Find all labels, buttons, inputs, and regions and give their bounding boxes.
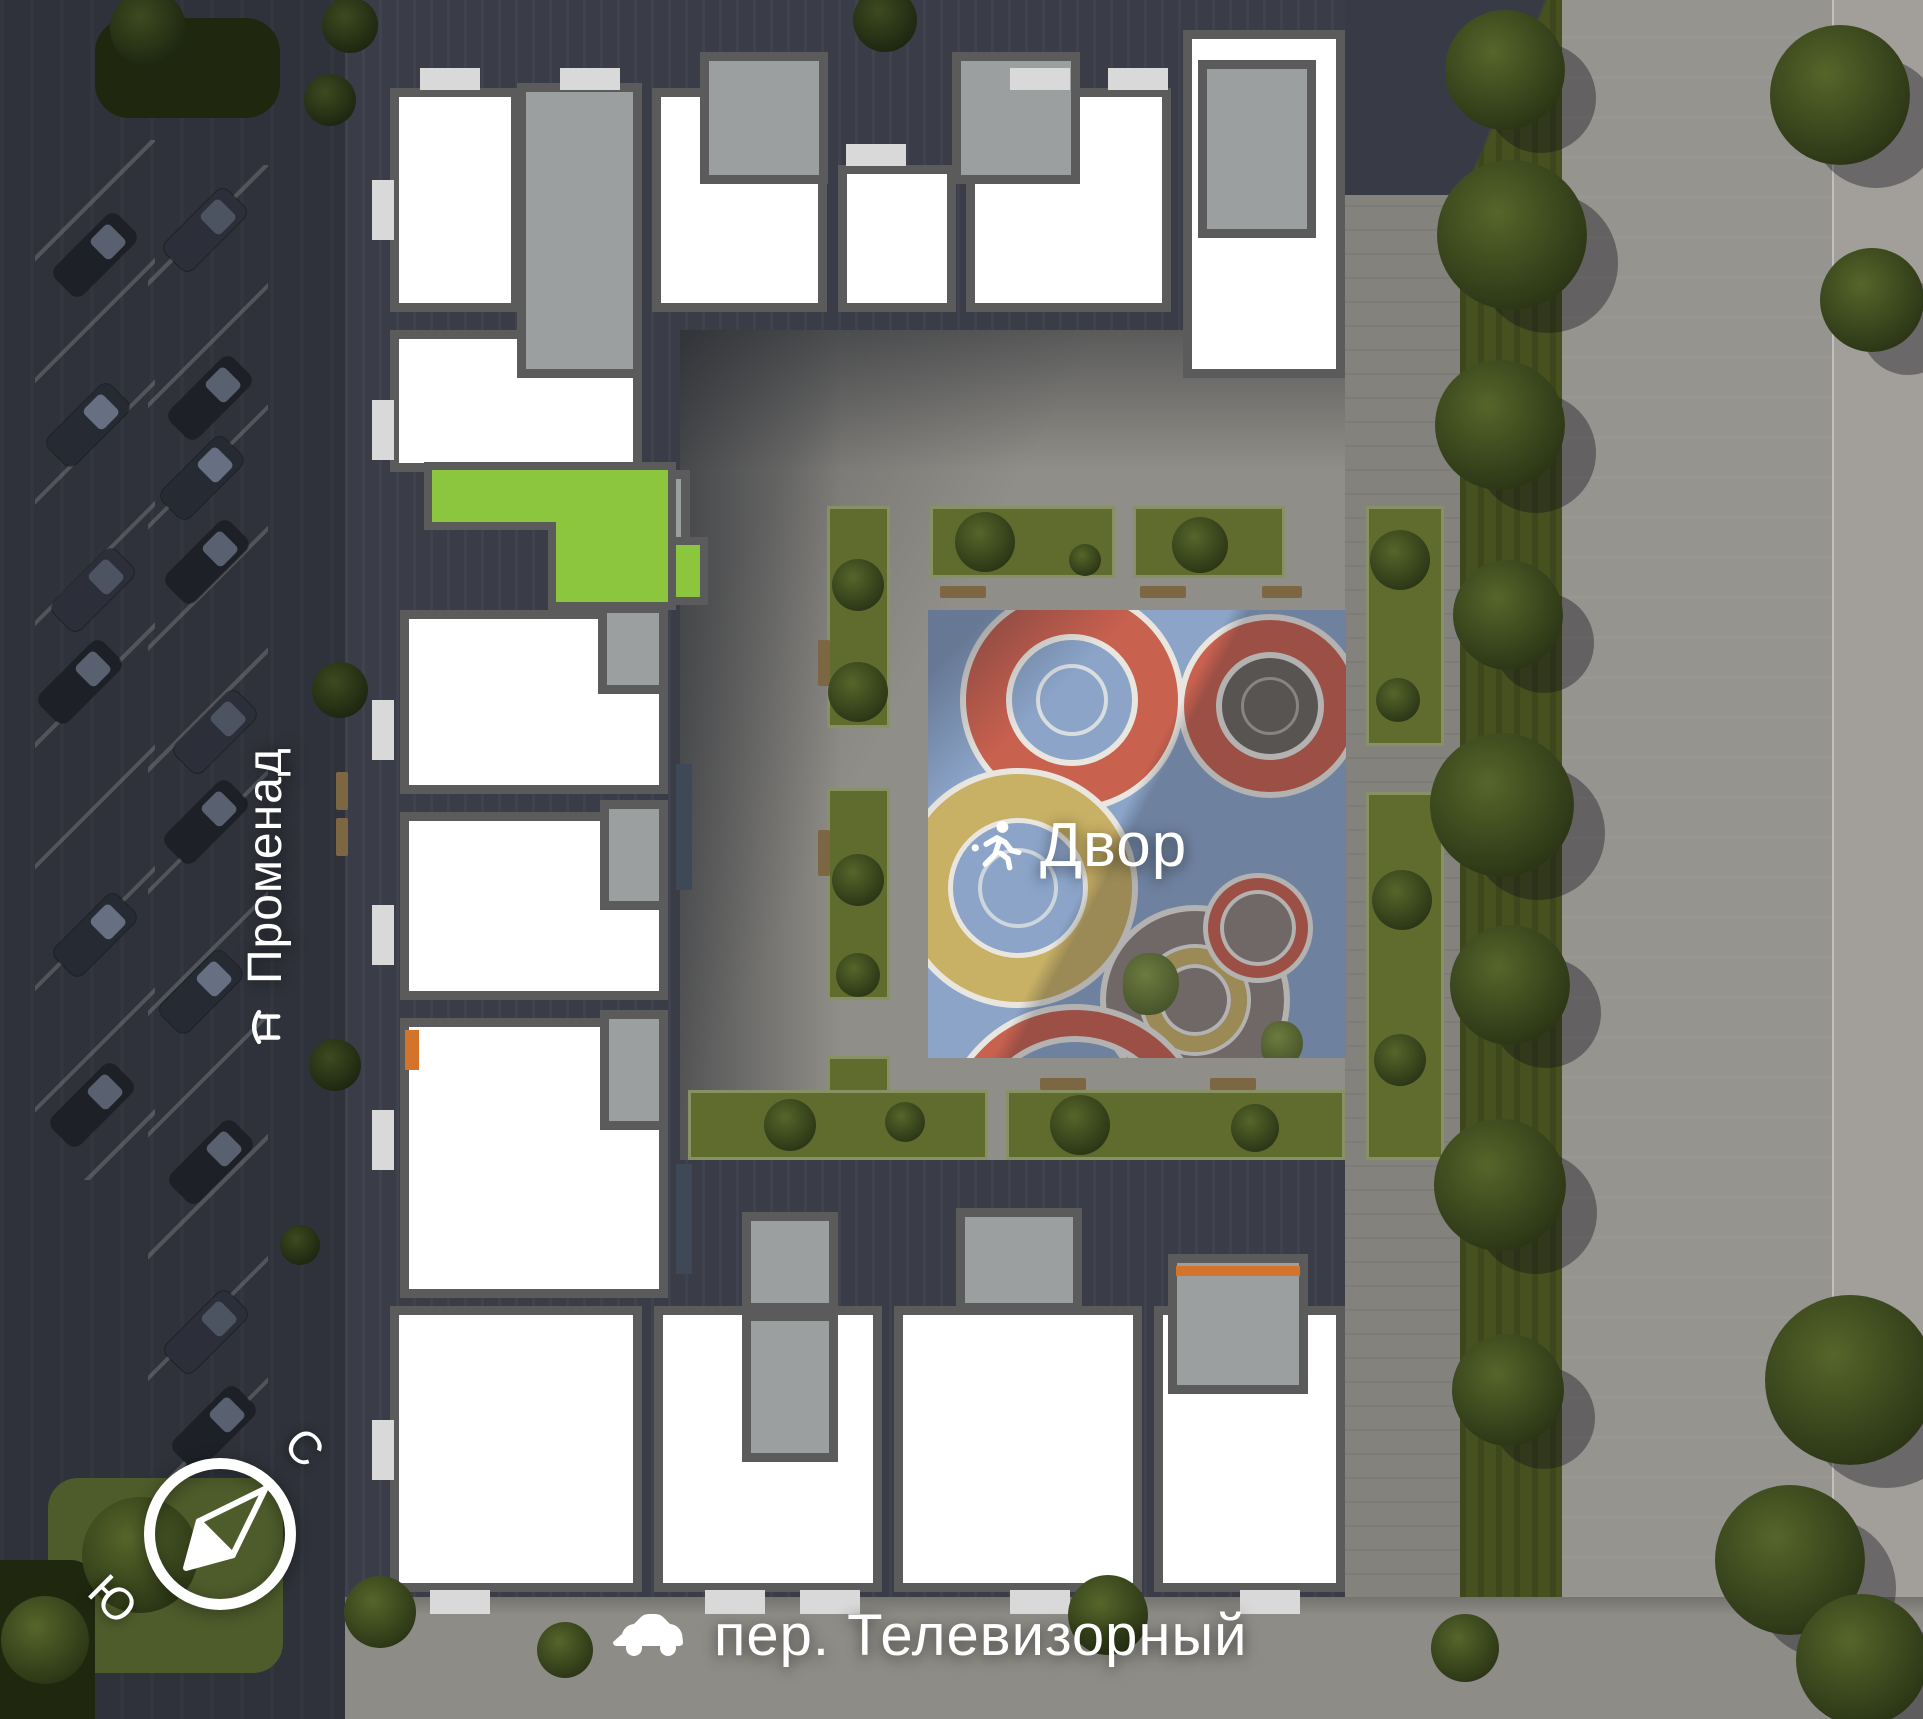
- entrance-glass: [676, 1164, 692, 1274]
- stair-core: [1198, 60, 1316, 238]
- lawn-bed: [688, 1090, 988, 1160]
- tree: [1069, 544, 1101, 576]
- bench: [336, 772, 348, 810]
- balcony-ledge: [560, 68, 620, 90]
- bench: [336, 818, 348, 856]
- tree: [1430, 733, 1574, 877]
- apartment-unit: [838, 165, 956, 312]
- street-label-text: Променад: [238, 747, 293, 984]
- balcony-ledge: [372, 180, 394, 240]
- bench: [1262, 586, 1302, 598]
- tree: [828, 662, 888, 722]
- tree: [885, 1102, 925, 1142]
- tree: [1370, 530, 1430, 590]
- car-icon: [612, 1610, 688, 1662]
- tree: [1374, 1034, 1426, 1086]
- tree: [1820, 248, 1923, 352]
- balcony-ledge: [846, 144, 906, 166]
- bench: [1040, 1078, 1086, 1090]
- tree: [1434, 1119, 1566, 1251]
- tree: [1372, 870, 1432, 930]
- tree: [309, 1039, 361, 1091]
- tree: [537, 1622, 593, 1678]
- courtyard-label: Двор: [968, 810, 1187, 881]
- balcony-ledge: [430, 1590, 490, 1614]
- tree: [832, 559, 884, 611]
- street-label-text: пер. Телевизорный: [714, 1602, 1248, 1669]
- apartment-unit: [390, 88, 520, 312]
- stair-core: [600, 800, 668, 910]
- stair-core: [517, 83, 642, 378]
- accent-stripe: [1176, 1266, 1300, 1276]
- apartment-unit: [390, 1306, 642, 1592]
- accent-stripe: [405, 1030, 419, 1070]
- tree: [832, 854, 884, 906]
- bench: [1210, 1078, 1256, 1090]
- tree: [344, 1576, 416, 1648]
- bench: [818, 640, 830, 686]
- tree: [1172, 517, 1228, 573]
- balcony-ledge: [372, 1420, 394, 1480]
- tree: [1453, 560, 1563, 670]
- stair-core: [956, 1208, 1082, 1312]
- tree: [836, 953, 880, 997]
- tree: [1435, 360, 1565, 490]
- tree: [1452, 1334, 1564, 1446]
- tree: [312, 662, 368, 718]
- tree: [1445, 10, 1565, 130]
- road-right: [1562, 0, 1832, 1719]
- tree: [1437, 160, 1587, 310]
- bench: [818, 830, 830, 876]
- entrance-glass: [676, 764, 692, 890]
- balcony-ledge: [1108, 68, 1168, 90]
- tree: [1450, 925, 1570, 1045]
- tree: [1050, 1095, 1110, 1155]
- bench: [940, 586, 986, 598]
- balcony-ledge: [420, 68, 480, 90]
- tree: [1431, 1614, 1499, 1682]
- tree: [1231, 1104, 1279, 1152]
- compass: [132, 1446, 308, 1622]
- balcony-ledge: [372, 400, 394, 460]
- stair-core: [742, 1312, 838, 1462]
- balcony-ledge: [1010, 68, 1070, 90]
- balcony-ledge: [372, 905, 394, 965]
- stair-core: [600, 1010, 668, 1130]
- tree: [1765, 1295, 1923, 1465]
- courtyard-label-text: Двор: [1040, 810, 1187, 881]
- balcony-ledge: [1240, 1590, 1300, 1614]
- tree: [1796, 1594, 1923, 1719]
- playground: Двор: [928, 610, 1346, 1058]
- tree: [1376, 678, 1420, 722]
- street-label-televizorny: пер. Телевизорный: [612, 1602, 1248, 1669]
- stair-core: [700, 52, 828, 184]
- stair-core: [598, 604, 668, 694]
- apartment-unit: [894, 1306, 1142, 1592]
- stair-core: [742, 1212, 838, 1312]
- balcony-ledge: [372, 700, 394, 760]
- bench: [1140, 586, 1186, 598]
- runner-icon: [968, 817, 1026, 875]
- street-label-promenad: Променад: [238, 747, 293, 1048]
- tree: [1770, 25, 1910, 165]
- tree: [280, 1225, 320, 1265]
- tree: [304, 74, 356, 126]
- tree: [1, 1596, 89, 1684]
- lawn-bed: [1366, 792, 1444, 1160]
- tree: [764, 1099, 816, 1151]
- tree: [955, 512, 1015, 572]
- bench-icon: [245, 1006, 287, 1048]
- site-plan: Двор Променад пер. Телевизорный: [0, 0, 1923, 1719]
- balcony-ledge: [372, 1110, 394, 1170]
